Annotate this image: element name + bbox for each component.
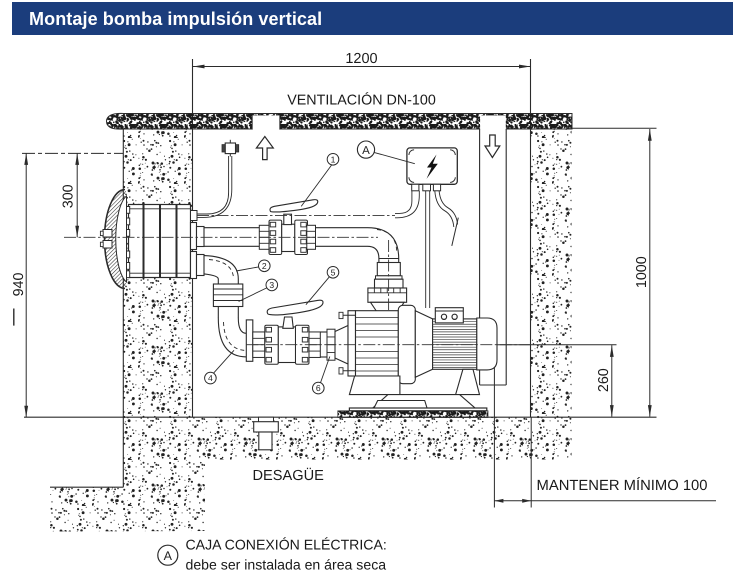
svg-text:260: 260 bbox=[596, 368, 612, 392]
svg-text:940: 940 bbox=[11, 273, 27, 297]
svg-text:A: A bbox=[362, 145, 370, 157]
svg-text:1000: 1000 bbox=[634, 256, 650, 288]
svg-text:DESAGÜE: DESAGÜE bbox=[253, 467, 325, 484]
svg-text:300: 300 bbox=[60, 184, 76, 208]
svg-text:3: 3 bbox=[269, 280, 274, 290]
svg-text:4: 4 bbox=[208, 373, 213, 383]
svg-text:1200: 1200 bbox=[345, 51, 377, 67]
svg-text:1: 1 bbox=[331, 154, 336, 164]
svg-text:debe ser instalada en área sec: debe ser instalada en área seca bbox=[186, 556, 387, 572]
svg-text:6: 6 bbox=[316, 383, 321, 393]
svg-text:5: 5 bbox=[331, 267, 336, 277]
svg-text:2: 2 bbox=[262, 261, 267, 271]
svg-text:CAJA CONEXIÓN ELÉCTRICA:: CAJA CONEXIÓN ELÉCTRICA: bbox=[186, 537, 387, 553]
svg-text:MANTENER MÍNIMO 100: MANTENER MÍNIMO 100 bbox=[537, 477, 708, 494]
svg-text:A: A bbox=[164, 549, 173, 563]
svg-text:VENTILACIÓN DN-100: VENTILACIÓN DN-100 bbox=[287, 92, 436, 109]
